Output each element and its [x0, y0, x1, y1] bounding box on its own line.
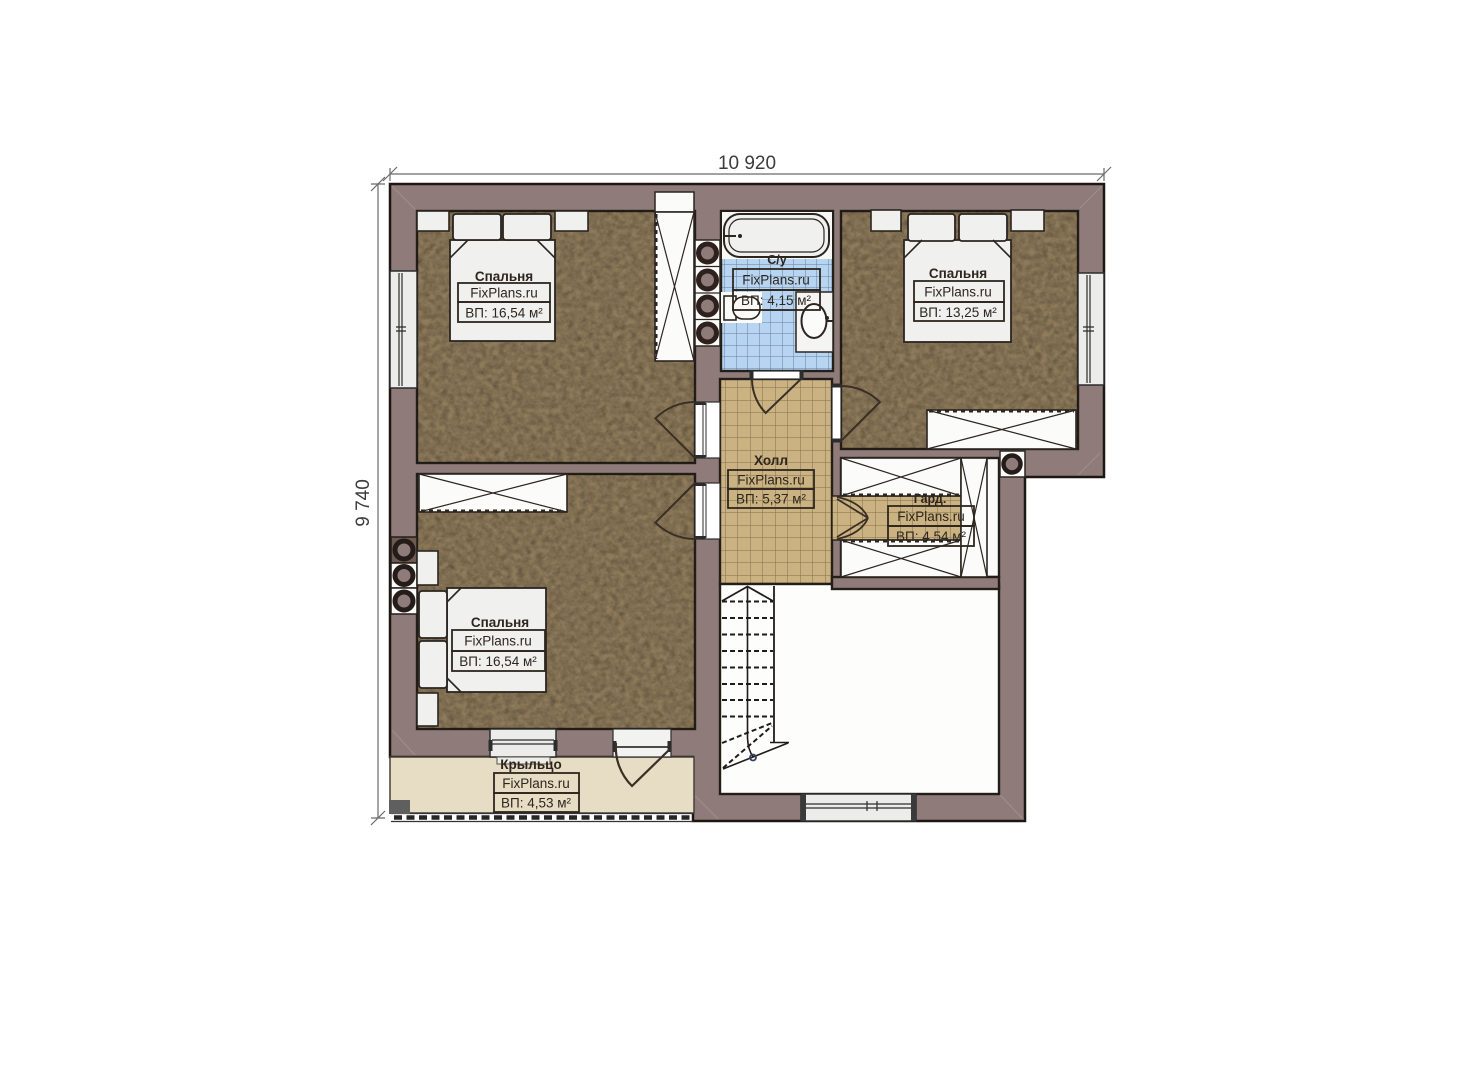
svg-text:ВП: 4,53 м²: ВП: 4,53 м² — [501, 796, 572, 811]
svg-text:Спальня: Спальня — [475, 269, 533, 284]
svg-text:10 920: 10 920 — [718, 153, 776, 174]
svg-text:FixPlans.ru: FixPlans.ru — [742, 273, 810, 288]
svg-text:Спальня: Спальня — [471, 615, 529, 630]
svg-text:Холл: Холл — [754, 453, 788, 468]
svg-text:ВП: 13,25 м²: ВП: 13,25 м² — [919, 305, 997, 320]
svg-text:9 740: 9 740 — [353, 479, 374, 527]
svg-text:ВП: 4,15 м²: ВП: 4,15 м² — [741, 293, 812, 308]
svg-text:ВП: 5,37 м²: ВП: 5,37 м² — [736, 492, 807, 507]
svg-text:FixPlans.ru: FixPlans.ru — [470, 286, 538, 301]
svg-text:ВП: 16,54 м²: ВП: 16,54 м² — [465, 306, 543, 321]
svg-text:FixPlans.ru: FixPlans.ru — [897, 509, 965, 524]
svg-text:FixPlans.ru: FixPlans.ru — [924, 285, 992, 300]
svg-text:FixPlans.ru: FixPlans.ru — [737, 473, 805, 488]
svg-text:ВП: 4,54 м²: ВП: 4,54 м² — [896, 529, 967, 544]
svg-text:ВП: 16,54 м²: ВП: 16,54 м² — [459, 654, 537, 669]
svg-text:Гард.: Гард. — [914, 492, 947, 506]
svg-text:Спальня: Спальня — [929, 266, 987, 281]
svg-text:FixPlans.ru: FixPlans.ru — [464, 634, 532, 649]
svg-text:Крыльцо: Крыльцо — [500, 757, 561, 772]
svg-text:FixPlans.ru: FixPlans.ru — [502, 776, 570, 791]
svg-text:С/у: С/у — [767, 253, 787, 267]
